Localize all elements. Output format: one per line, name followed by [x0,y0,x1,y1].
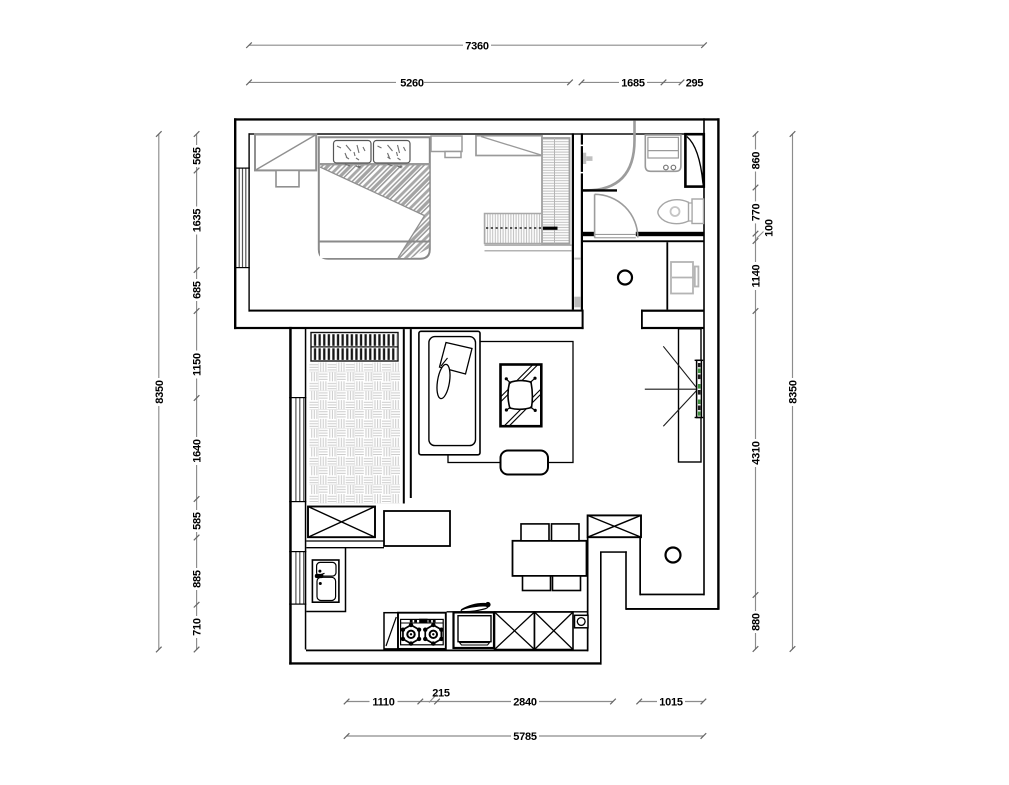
svg-text:880: 880 [751,613,763,631]
svg-text:770: 770 [751,203,763,221]
svg-text:215: 215 [432,688,450,700]
svg-text:860: 860 [751,152,763,170]
svg-text:100: 100 [764,219,776,237]
svg-text:565: 565 [192,147,204,165]
svg-text:885: 885 [192,570,204,588]
svg-text:2840: 2840 [513,697,537,709]
svg-text:5785: 5785 [513,731,537,743]
svg-text:7360: 7360 [465,40,489,52]
svg-text:1685: 1685 [621,78,645,90]
svg-text:1140: 1140 [751,264,763,287]
svg-text:8350: 8350 [154,380,166,404]
svg-text:585: 585 [192,512,204,530]
svg-text:295: 295 [686,78,704,90]
svg-text:1015: 1015 [659,697,683,709]
svg-text:8350: 8350 [788,380,800,404]
svg-text:5260: 5260 [400,78,424,90]
svg-text:1640: 1640 [192,439,204,463]
svg-text:1150: 1150 [192,353,204,376]
svg-text:4310: 4310 [751,441,763,465]
svg-text:1110: 1110 [372,697,394,709]
svg-text:710: 710 [192,618,204,636]
svg-text:1635: 1635 [192,209,204,233]
svg-text:685: 685 [192,281,204,299]
